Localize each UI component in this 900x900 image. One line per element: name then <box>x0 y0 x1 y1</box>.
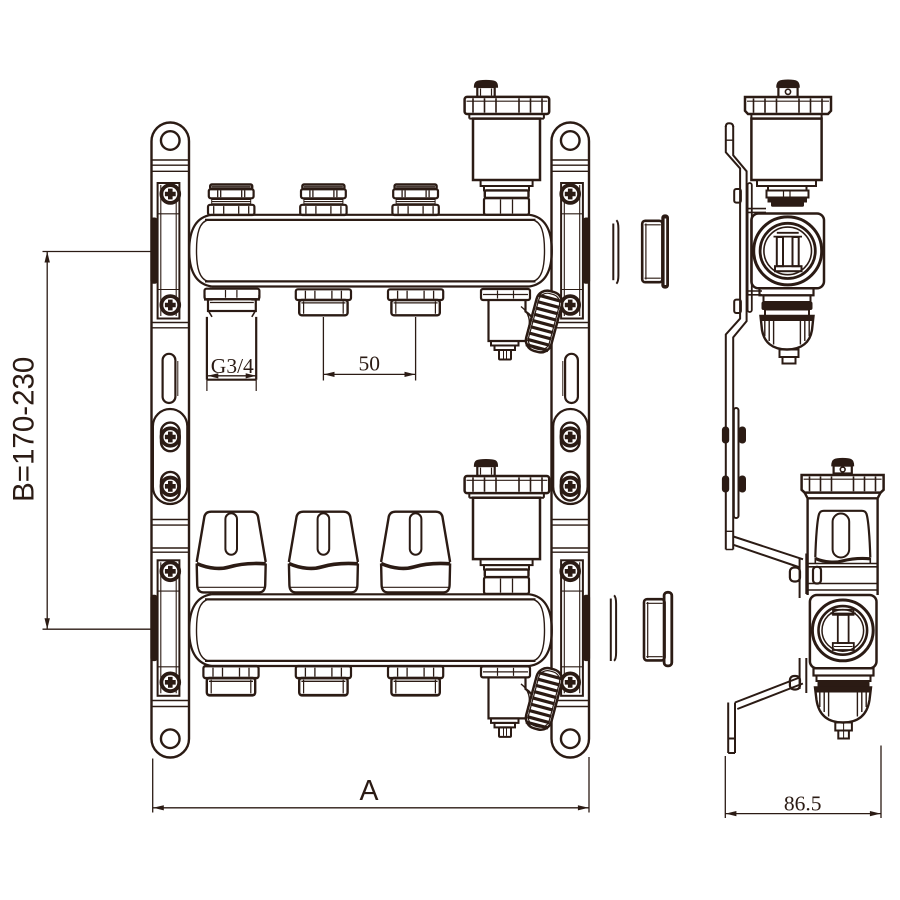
svg-text:86.5: 86.5 <box>784 791 822 815</box>
svg-text:G3/4: G3/4 <box>211 354 254 378</box>
svg-text:B=170-230: B=170-230 <box>8 357 41 502</box>
svg-text:50: 50 <box>359 352 381 376</box>
svg-text:A: A <box>359 775 378 807</box>
